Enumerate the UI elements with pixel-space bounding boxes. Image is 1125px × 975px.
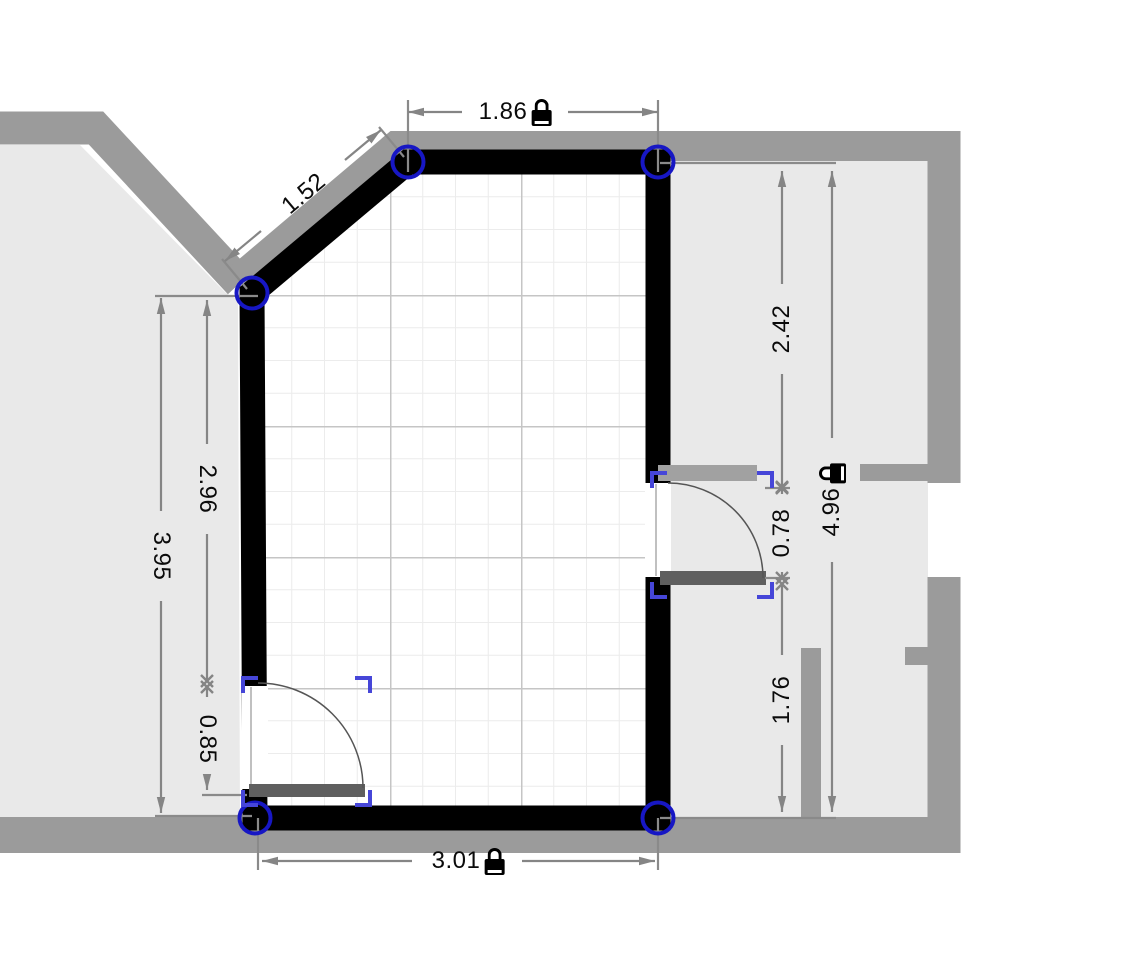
dimension-value: 3.95 [147,532,175,581]
left-door-opening[interactable] [242,686,268,789]
partition-wall-stub-lower[interactable] [905,647,928,665]
right-door-opening[interactable] [645,483,671,577]
right-door-head-bar [658,465,757,481]
dimension-left-total[interactable]: 3.95 [147,532,175,581]
dimension-right-door-width[interactable]: 0.78 [768,509,796,558]
dimension-left-door-width[interactable]: 0.85 [193,715,221,764]
dimension-top-width[interactable]: 1.86 [479,98,552,126]
dimension-value: 3.01 [432,847,481,875]
dimension-value: 1.76 [768,676,796,725]
partition-wall-vertical[interactable] [801,648,821,838]
adjacent-room-right [660,146,928,835]
dimension-value: 1.86 [479,98,528,126]
lock-icon[interactable] [819,464,846,484]
dimension-value: 4.96 [818,488,846,537]
dimension-right-total[interactable]: 4.96 [818,464,846,537]
dimension-left-upper[interactable]: 2.96 [193,465,221,514]
dimension-right-lower[interactable]: 1.76 [768,676,796,725]
dimension-right-upper[interactable]: 2.42 [768,305,796,354]
dimension-value: 2.96 [193,465,221,514]
floorplan-canvas[interactable]: 1.86 1.52 2.96 3.95 0.85 2.42 0.78 1.76 … [0,0,1125,975]
room-grid [252,162,658,818]
right-door-leaf[interactable] [660,571,766,585]
dimension-value: 0.85 [193,715,221,764]
partition-wall-stub-upper[interactable] [860,464,928,481]
dimension-value: 2.42 [768,305,796,354]
dimension-value: 0.78 [768,509,796,558]
lock-icon[interactable] [484,848,504,875]
left-door-leaf[interactable] [249,784,365,797]
lock-icon[interactable] [531,99,551,126]
dimension-bottom-width[interactable]: 3.01 [432,847,505,875]
